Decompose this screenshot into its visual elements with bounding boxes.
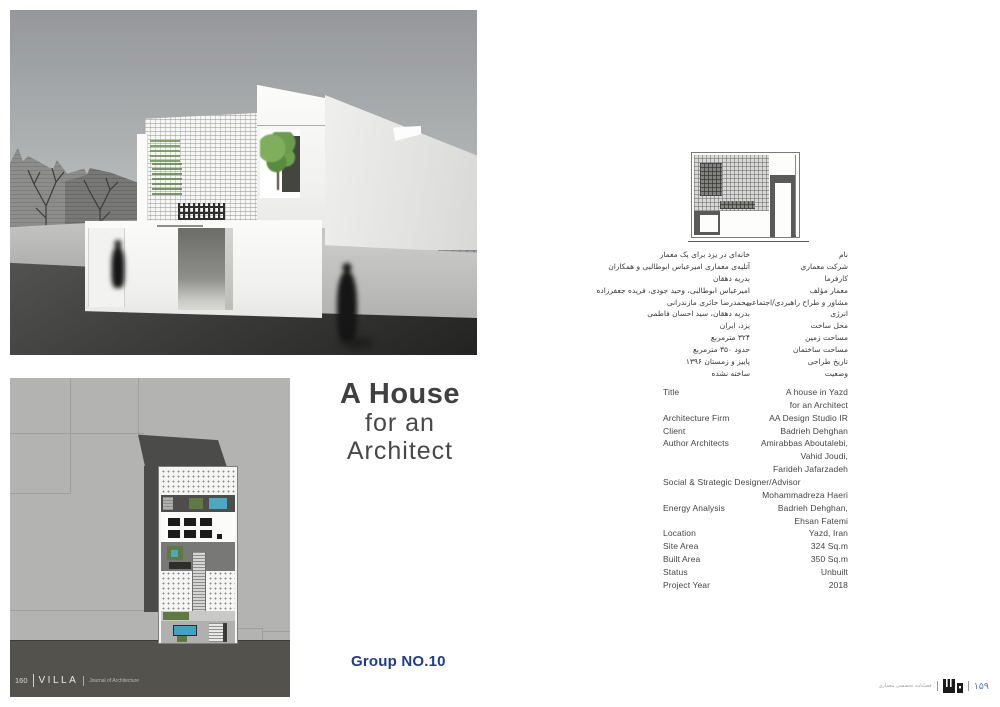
persian-detail-row: خانه‌ای در یزد برای یک معمارنام bbox=[590, 250, 848, 261]
green-vines bbox=[150, 138, 180, 162]
parcel-line bbox=[10, 610, 144, 611]
courtyard-garden bbox=[167, 546, 183, 560]
detail-label: Energy Analysis bbox=[663, 503, 725, 513]
parcel-line bbox=[10, 433, 144, 434]
english-detail-row: Social & Strategic Designer/Advisor bbox=[663, 477, 848, 489]
ground-court bbox=[161, 621, 235, 643]
english-detail-row: Project Year2018 bbox=[663, 580, 848, 592]
green-vines-2 bbox=[152, 162, 182, 195]
persian-detail-row: امیرعباس ابوطالبی، وحید جودی، فریده جعفر… bbox=[590, 286, 848, 297]
detail-label: محل ساخت bbox=[811, 321, 849, 330]
detail-label: انرژی bbox=[830, 309, 848, 318]
parcel-line bbox=[238, 628, 262, 629]
detail-label: شرکت معماری bbox=[801, 262, 849, 271]
balcony-recess bbox=[260, 130, 300, 198]
figure-shadow bbox=[340, 338, 374, 348]
page-footer-right: فصلنامه تخصصی معماری ۱۵۹ bbox=[878, 679, 989, 693]
house-front-facade bbox=[257, 82, 325, 228]
project-title-line2: for an bbox=[330, 409, 470, 437]
persian-detail-row: بدریه دهقانکارفرما bbox=[590, 274, 848, 285]
dark-hatched-patch bbox=[700, 163, 722, 196]
english-detail-row: TitleA house in Yazd bbox=[663, 387, 848, 399]
persian-detail-row: پاییز و زمستان ۱۳۹۶تاریخ طراحی bbox=[590, 357, 848, 368]
inner-wall-line bbox=[795, 155, 796, 235]
detail-label: Client bbox=[663, 426, 685, 436]
green-patio bbox=[189, 498, 203, 509]
parcel-line bbox=[10, 493, 70, 494]
detail-value: Unbuilt bbox=[821, 567, 848, 577]
skylight bbox=[168, 530, 180, 538]
project-title-line3: Architect bbox=[330, 437, 470, 465]
journal-spread-page: 160 VILLA Journal of Architecture A Hous… bbox=[0, 0, 1000, 707]
detail-label: Social & Strategic Designer/Advisor bbox=[663, 477, 801, 487]
english-detail-row: Author ArchitectsAmirabbas Aboutalebi, bbox=[663, 438, 848, 450]
journal-name: VILLA bbox=[39, 675, 79, 686]
section-rule bbox=[688, 241, 809, 242]
left-page-number: 160 bbox=[15, 676, 28, 685]
english-detail-row: Energy AnalysisBadrieh Dehghan, bbox=[663, 503, 848, 515]
detail-value: Vahid Joudi, bbox=[801, 451, 848, 461]
perforated-brick-screen bbox=[145, 113, 257, 228]
persian-detail-row: ۳۲۴ مترمربعمساحت زمین bbox=[590, 333, 848, 344]
hero-render-photo bbox=[10, 10, 477, 355]
entry-wall bbox=[223, 623, 227, 642]
detail-label: Architecture Firm bbox=[663, 413, 729, 423]
english-detail-row: Mohammadreza Haeri bbox=[663, 490, 848, 502]
detail-label: Title bbox=[663, 387, 679, 397]
pedestrian-figure-2 bbox=[332, 263, 362, 343]
detail-value: خانه‌ای در یزد برای یک معمار bbox=[660, 250, 750, 259]
persian-detail-row: حدود ۳۵۰ مترمربعمساحت ساختمان bbox=[590, 345, 848, 356]
english-detail-row: Vahid Joudi, bbox=[663, 451, 848, 463]
villa-logo-icon bbox=[943, 679, 963, 693]
persian-detail-row: ساخته نشدهوضعیت bbox=[590, 369, 848, 380]
detail-value: بدریه دهقان، سید احسان فاطمی bbox=[647, 309, 750, 318]
caption-divider bbox=[33, 674, 34, 687]
small-skylight bbox=[217, 534, 222, 539]
entrance-opening bbox=[178, 228, 233, 310]
skylight-dots-3 bbox=[208, 571, 235, 611]
parcel-line bbox=[262, 631, 290, 632]
english-detail-row: Architecture FirmAA Design Studio IR bbox=[663, 413, 848, 425]
site-plan-drawing: 160 VILLA Journal of Architecture bbox=[10, 378, 290, 697]
skylight-block bbox=[161, 512, 235, 542]
detail-label: معمار مؤلف bbox=[810, 286, 848, 295]
skylight bbox=[184, 530, 196, 538]
detail-value: پاییز و زمستان ۱۳۹۶ bbox=[686, 357, 750, 366]
english-detail-row: Site Area324 Sq.m bbox=[663, 541, 848, 553]
detail-value: 324 Sq.m bbox=[811, 541, 848, 551]
detail-value: for an Architect bbox=[790, 400, 848, 410]
detail-label: مشاور و طراح راهبردی/اجتماعی bbox=[746, 298, 848, 307]
opening-side-light bbox=[225, 228, 233, 310]
parcel-line bbox=[70, 378, 71, 493]
detail-value: محمدرضا حائری مازندرانی bbox=[667, 298, 750, 307]
project-title-line1: A House bbox=[330, 379, 470, 409]
english-detail-row: ClientBadrieh Dehghan bbox=[663, 426, 848, 438]
persian-detail-row: یزد، ایرانمحل ساخت bbox=[590, 321, 848, 332]
detail-value: A house in Yazd bbox=[786, 387, 848, 397]
skylight-dots-2 bbox=[161, 571, 191, 611]
detail-value: آتلیه‌ی معماری امیرعباس ابوطالبی و همکار… bbox=[608, 262, 750, 271]
dark-grille bbox=[178, 203, 225, 220]
english-detail-row: for an Architect bbox=[663, 400, 848, 412]
persian-detail-row: محمدرضا حائری مازندرانیمشاور و طراح راهب… bbox=[590, 298, 848, 309]
journal-caption-fa: فصلنامه تخصصی معماری bbox=[878, 683, 931, 689]
english-detail-row: Ehsan Fatemi bbox=[663, 516, 848, 528]
dark-roof-band bbox=[161, 495, 235, 512]
skylight bbox=[200, 518, 212, 526]
detail-value: Amirabbas Aboutalebi, bbox=[761, 438, 848, 448]
skylight bbox=[200, 530, 212, 538]
footer-divider bbox=[937, 681, 938, 691]
terrace-band bbox=[161, 611, 235, 621]
parcel-line bbox=[138, 378, 139, 434]
plan-diagram bbox=[692, 153, 799, 237]
detail-value: Ehsan Fatemi bbox=[794, 516, 848, 526]
english-detail-row: LocationYazd, Iran bbox=[663, 528, 848, 540]
detail-label: کارفرما bbox=[824, 274, 848, 283]
english-details-list: TitleA house in Yazd for an Architect Ar… bbox=[663, 387, 848, 597]
detail-label: Site Area bbox=[663, 541, 698, 551]
white-pier bbox=[137, 134, 147, 228]
english-detail-row: Farideh Jafarzadeh bbox=[663, 464, 848, 476]
ground-pool bbox=[173, 625, 197, 636]
detail-label: مساحت زمین bbox=[805, 333, 848, 342]
journal-subtitle: Journal of Architecture bbox=[89, 678, 139, 684]
plan-caption: 160 VILLA Journal of Architecture bbox=[15, 674, 139, 687]
skylight-dots bbox=[161, 469, 235, 495]
plan-street-band bbox=[10, 640, 290, 697]
footer-divider-2 bbox=[968, 681, 969, 691]
detail-label: وضعیت bbox=[825, 369, 848, 378]
house-side-wall bbox=[325, 95, 477, 250]
detail-label: Author Architects bbox=[663, 438, 729, 448]
project-title: A House for an Architect bbox=[330, 379, 470, 465]
ground-green bbox=[177, 636, 187, 642]
detail-label: مساحت ساختمان bbox=[793, 345, 848, 354]
skylight bbox=[168, 518, 180, 526]
detail-value: بدریه دهقان bbox=[713, 274, 750, 283]
pool bbox=[209, 498, 227, 509]
dark-room bbox=[169, 562, 191, 569]
persian-detail-row: آتلیه‌ی معماری امیرعباس ابوطالبی و همکار… bbox=[590, 262, 848, 273]
detail-value: ساخته نشده bbox=[711, 369, 750, 378]
facade-reveal-line bbox=[257, 125, 325, 126]
detail-label: Project Year bbox=[663, 580, 710, 590]
group-number-label: Group NO.10 bbox=[351, 653, 446, 670]
caption-divider-2 bbox=[83, 676, 84, 686]
skylight bbox=[184, 518, 196, 526]
roof-plan bbox=[158, 466, 238, 644]
dark-hatched-patch-2 bbox=[720, 201, 755, 209]
detail-value: Farideh Jafarzadeh bbox=[773, 464, 848, 474]
detail-label: نام bbox=[839, 250, 848, 259]
courtyard-pond bbox=[171, 550, 178, 557]
wall-block-void bbox=[700, 215, 718, 232]
persian-details-list: خانه‌ای در یزد برای یک معمارنام آتلیه‌ی … bbox=[590, 250, 848, 382]
pedestrian-figure bbox=[108, 240, 128, 290]
detail-label: تاریخ طراحی bbox=[808, 357, 848, 366]
terrace-green bbox=[163, 612, 189, 620]
detail-value: Mohammadreza Haeri bbox=[762, 490, 848, 500]
detail-value: 2018 bbox=[829, 580, 848, 590]
detail-label: Built Area bbox=[663, 554, 700, 564]
wall-block-right bbox=[770, 175, 796, 237]
detail-value: حدود ۳۵۰ مترمربع bbox=[693, 345, 750, 354]
central-stair bbox=[192, 552, 206, 611]
wall-block-void-2 bbox=[775, 183, 791, 237]
english-detail-row: StatusUnbuilt bbox=[663, 567, 848, 579]
detail-value: Badrieh Dehghan bbox=[780, 426, 848, 436]
detail-value: امیرعباس ابوطالبی، وحید جودی، فریده جعفر… bbox=[596, 286, 750, 295]
detail-value: ۳۲۴ مترمربع bbox=[711, 333, 750, 342]
persian-detail-row: بدریه دهقان، سید احسان فاطمیانرژی bbox=[590, 309, 848, 320]
english-detail-row: Built Area350 Sq.m bbox=[663, 554, 848, 566]
detail-value: یزد، ایران bbox=[720, 321, 750, 330]
canopy-line bbox=[157, 225, 203, 227]
detail-value: Badrieh Dehghan, bbox=[778, 503, 848, 513]
building-shadow-side bbox=[144, 466, 158, 612]
stair-flight bbox=[163, 497, 173, 510]
right-page-number: ۱۵۹ bbox=[974, 681, 989, 692]
detail-label: Location bbox=[663, 528, 696, 538]
detail-value: 350 Sq.m bbox=[811, 554, 848, 564]
wall-block-bl bbox=[694, 211, 720, 235]
detail-value: Yazd, Iran bbox=[809, 528, 848, 538]
detail-value: AA Design Studio IR bbox=[769, 413, 848, 423]
building-shadow bbox=[138, 434, 230, 468]
balcony-tree bbox=[260, 132, 296, 190]
parcel-line bbox=[262, 628, 263, 640]
detail-label: Status bbox=[663, 567, 688, 577]
